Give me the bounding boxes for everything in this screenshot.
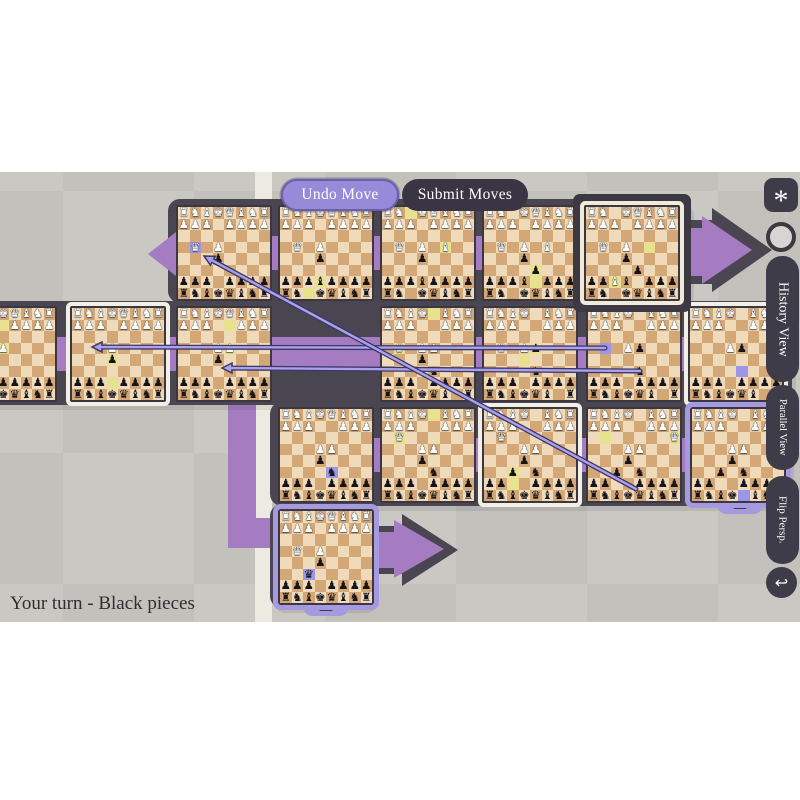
history-view-button[interactable]: History View bbox=[766, 256, 799, 382]
undo-history-button[interactable]: ↩ bbox=[766, 567, 797, 598]
game-viewport: ♜♞♝♚♛♝♞♜♟♟♟♟♟♟♟♟♟♟♟♟♟♟♟♟♜♞♝♚♛♝♞♜♜♞♝♚♛♝♞♜… bbox=[0, 172, 800, 622]
parallel-view-button[interactable]: Parallel View bbox=[766, 385, 799, 470]
flip-perspective-button[interactable]: Flip Persp. bbox=[766, 476, 799, 564]
settings-star-button[interactable]: * bbox=[764, 178, 798, 212]
asterisk-icon: * bbox=[774, 184, 789, 217]
time-travel-move-arrows bbox=[0, 172, 800, 622]
submit-moves-button[interactable]: Submit Moves bbox=[402, 179, 528, 211]
indicator-circle[interactable] bbox=[766, 222, 796, 252]
undo-arrow-icon: ↩ bbox=[775, 573, 788, 593]
turn-status-text: Your turn - Black pieces bbox=[10, 593, 195, 615]
undo-move-button[interactable]: Undo Move bbox=[281, 179, 399, 211]
